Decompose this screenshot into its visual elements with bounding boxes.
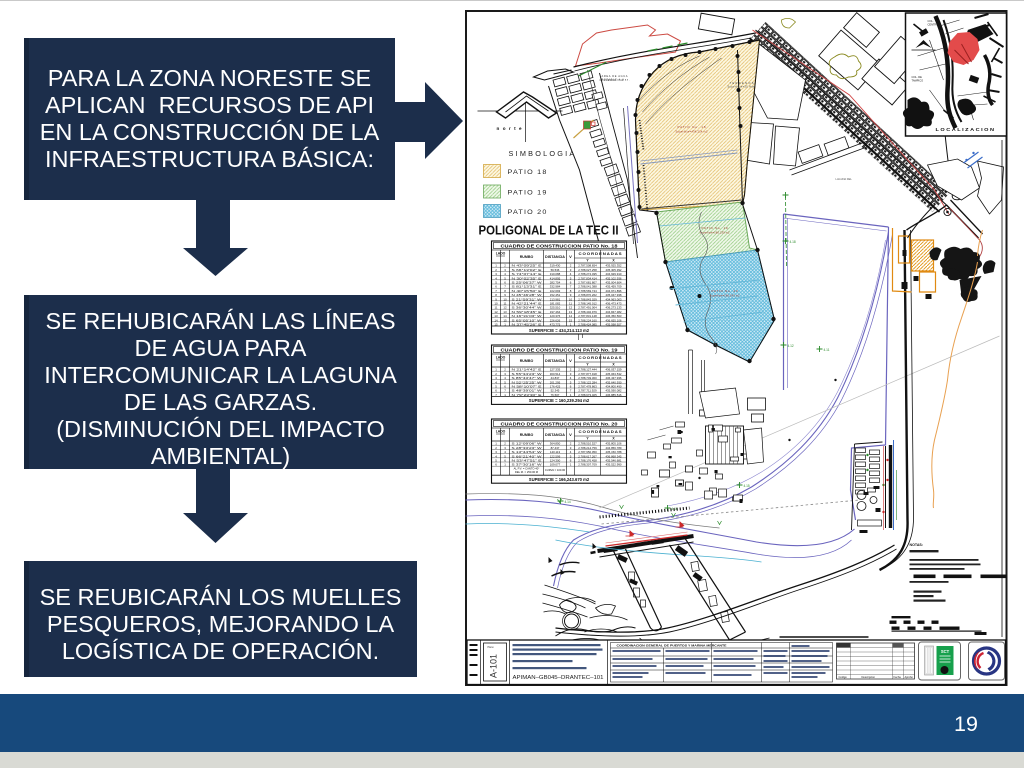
svg-text:RUMBO: RUMBO	[520, 255, 534, 259]
svg-text:Plano: Plano	[488, 646, 495, 649]
svg-text:V: V	[569, 358, 572, 363]
svg-text:Codigo: Codigo	[839, 675, 848, 679]
svg-text:Superficie=434,214 m2: Superficie=434,214 m2	[676, 130, 709, 134]
svg-text:Superficie=166,243 m2: Superficie=166,243 m2	[710, 294, 741, 298]
svg-text:PATIO No. 18: PATIO No. 18	[678, 125, 706, 129]
svg-text:POLIGONAL DE LA TEC II: POLIGONAL DE LA TEC II	[479, 223, 619, 238]
svg-text:COORDENADAS: COORDENADAS	[579, 356, 623, 360]
svg-text:TERRENOS: TERRENOS	[730, 81, 754, 85]
svg-text:Superficie=160,239 m2: Superficie=160,239 m2	[700, 231, 731, 235]
svg-text:LADO: LADO	[496, 356, 506, 360]
svg-text:SUPERFICIE = 166,243.670 m2: SUPERFICIE = 166,243.670 m2	[529, 477, 590, 482]
svg-text:V: V	[569, 254, 572, 259]
svg-text:SIMBOLOGIA: SIMBOLOGIA	[509, 149, 577, 158]
svg-text:COORDENADAS: COORDENADAS	[579, 430, 623, 434]
svg-text:CUADRO DE CONSTRUCCION PATIO N: CUADRO DE CONSTRUCCION PATIO No. 19	[501, 347, 619, 352]
svg-text:PATIO No. 20: PATIO No. 20	[712, 289, 738, 293]
svg-text:SUPERFICIE = 160,239.294 m2: SUPERFICIE = 160,239.294 m2	[529, 398, 590, 403]
svg-text:LADO: LADO	[496, 430, 506, 434]
svg-text:COL.: COL.	[928, 19, 934, 23]
svg-text:DISTANCIA: DISTANCIA	[545, 433, 566, 437]
svg-text:RUMBO: RUMBO	[520, 433, 534, 437]
svg-text:RUMBO: RUMBO	[520, 359, 534, 363]
svg-text:4.18: 4.18	[790, 240, 796, 244]
svg-text:COL. DE: COL. DE	[912, 75, 923, 79]
svg-text:CUADRO DE CONSTRUCCION PATIO N: CUADRO DE CONSTRUCCION PATIO No. 20	[501, 421, 619, 426]
svg-text:POTABLE 4 Has.: POTABLE 4 Has.	[602, 79, 630, 82]
svg-text:Descripcion: Descripcion	[862, 675, 876, 679]
svg-text:CURVA = 100.00: CURVA = 100.00	[545, 468, 566, 472]
svg-text:SUPERFICIE = 434,214.113 m2: SUPERFICIE = 434,214.113 m2	[529, 328, 590, 333]
svg-text:PATIO 18: PATIO 18	[508, 170, 548, 176]
svg-text:4.15: 4.15	[744, 484, 750, 488]
svg-text:AREA DE AGUA: AREA DE AGUA	[602, 74, 628, 78]
svg-text:NOTAS:: NOTAS:	[910, 543, 924, 547]
svg-text:norte: norte	[497, 126, 525, 131]
svg-text:Fecha: Fecha	[894, 675, 902, 679]
svg-text:DISTANCIA: DISTANCIA	[545, 359, 566, 363]
svg-text:LOCALIZACION: LOCALIZACION	[936, 127, 996, 132]
svg-text:4.12: 4.12	[788, 344, 794, 348]
svg-text:A-101: A-101	[489, 654, 499, 678]
svg-text:TAMPICO: TAMPICO	[912, 79, 924, 83]
svg-text:V: V	[569, 432, 572, 437]
svg-text:PATIO No. 19: PATIO No. 19	[702, 226, 728, 230]
svg-text:SCT: SCT	[941, 649, 950, 654]
svg-text:PATIO 20: PATIO 20	[508, 210, 548, 216]
svg-text:LAGUNA DEL: LAGUNA DEL	[836, 177, 853, 181]
svg-text:COORDENADAS: COORDENADAS	[579, 252, 623, 256]
svg-text:Superficie=55 Has.: Superficie=55 Has.	[728, 86, 756, 89]
svg-text:CUADRO DE CONSTRUCCION PATIO N: CUADRO DE CONSTRUCCION PATIO No. 18	[501, 243, 619, 248]
svg-text:COORDINACION GENERAL DE PUERTO: COORDINACION GENERAL DE PUERTOS Y MARINA…	[617, 644, 727, 648]
svg-text:4.14: 4.14	[565, 500, 571, 504]
svg-text:PATIO 19: PATIO 19	[508, 191, 548, 197]
svg-text:DEL M. = 250.00 M: DEL M. = 250.00 M	[515, 470, 539, 474]
svg-text:APIMAN–GB045–DRANTEC–101: APIMAN–GB045–DRANTEC–101	[513, 675, 604, 681]
svg-text:4.11: 4.11	[824, 348, 830, 352]
svg-text:Aprobo: Aprobo	[905, 675, 914, 679]
svg-text:DISTANCIA: DISTANCIA	[545, 255, 566, 259]
svg-text:LADO: LADO	[496, 252, 506, 256]
